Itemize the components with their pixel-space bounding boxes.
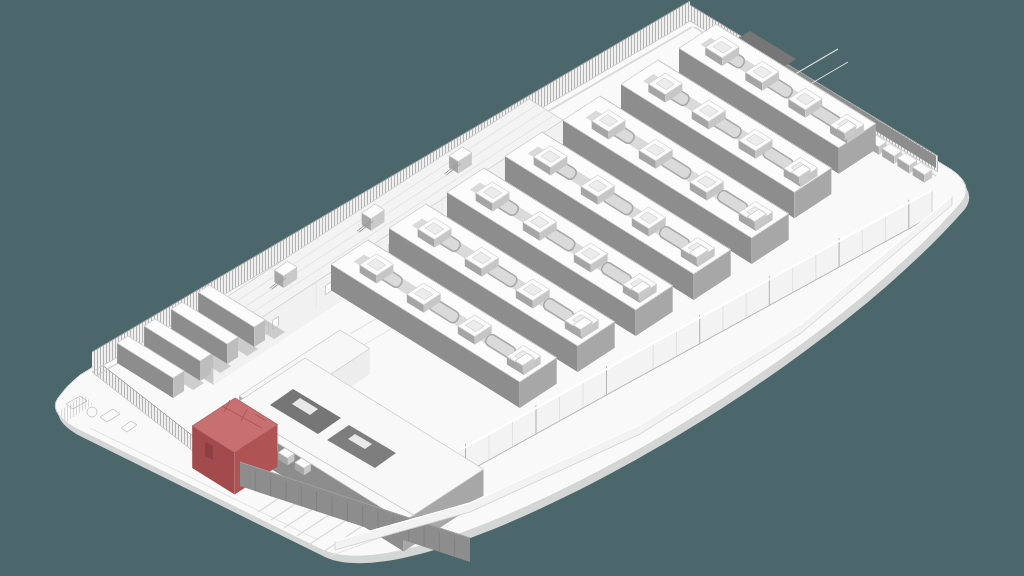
screenshot-canvas [0,0,1024,576]
site-isometric-diagram [0,0,1024,576]
